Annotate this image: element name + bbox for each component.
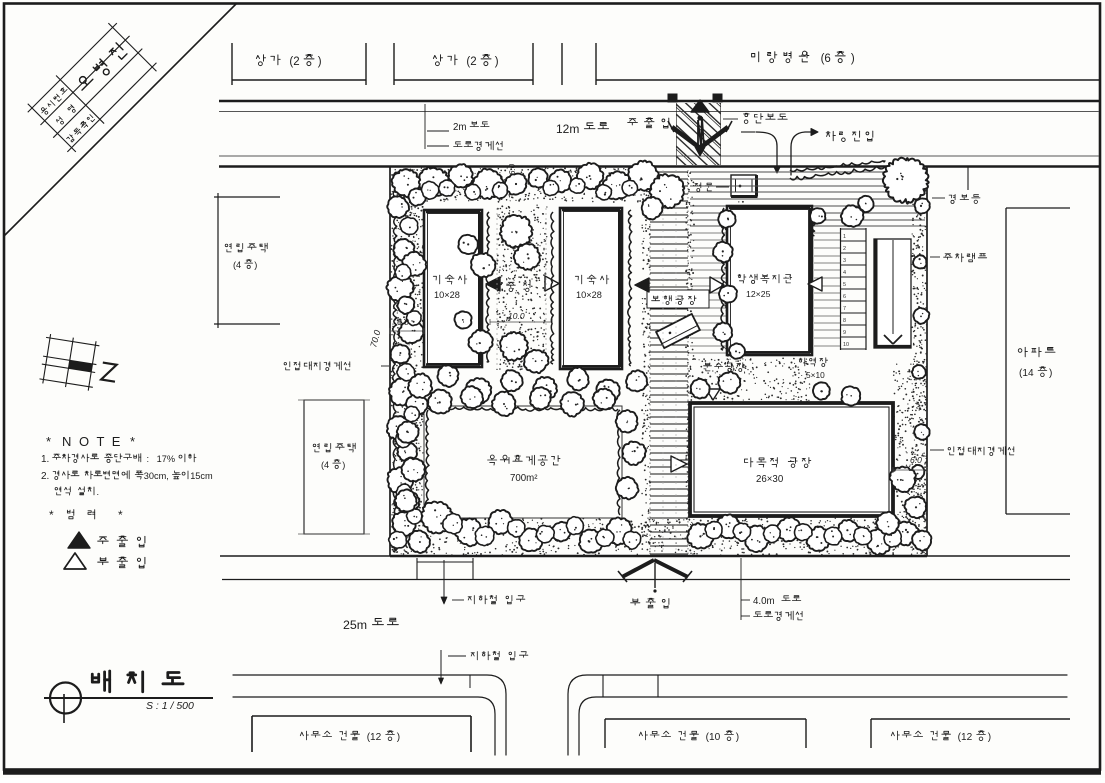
svg-text:9: 9 [843, 330, 846, 336]
svg-text:S : 1 / 500: S : 1 / 500 [146, 700, 194, 712]
svg-text:*: * [46, 434, 51, 449]
svg-text:10×28: 10×28 [576, 290, 602, 300]
svg-text:2: 2 [843, 246, 846, 252]
svg-text:5: 5 [843, 282, 846, 288]
svg-text:6: 6 [843, 294, 846, 300]
svg-text:10.0: 10.0 [508, 311, 525, 321]
svg-text:): ) [851, 53, 855, 65]
svg-text:): ) [342, 460, 345, 470]
svg-text:): ) [397, 732, 400, 743]
svg-text:(12: (12 [958, 732, 973, 743]
svg-text:(6: (6 [821, 53, 831, 65]
svg-text:15cm: 15cm [190, 471, 213, 481]
svg-text:(4: (4 [321, 460, 329, 470]
svg-text:26×30: 26×30 [756, 474, 784, 485]
svg-text:): ) [254, 260, 257, 270]
svg-text:*: * [118, 508, 123, 522]
svg-text::: : [147, 454, 150, 464]
svg-text:6.0: 6.0 [397, 317, 409, 327]
svg-text:(2: (2 [289, 56, 299, 68]
svg-text:*: * [130, 434, 135, 449]
svg-text:2m: 2m [453, 122, 466, 133]
svg-text:8: 8 [843, 318, 846, 324]
svg-text:*: * [49, 508, 54, 522]
svg-text:): ) [1049, 368, 1052, 379]
svg-text:10: 10 [843, 342, 849, 348]
svg-text:10×28: 10×28 [434, 290, 460, 300]
svg-text:(10: (10 [706, 732, 721, 743]
svg-text:): ) [988, 732, 991, 743]
svg-text:1: 1 [843, 234, 846, 240]
svg-text:2.: 2. [41, 471, 49, 482]
svg-text:.: . [97, 487, 100, 497]
svg-text:6.0: 6.0 [910, 455, 922, 465]
svg-text:(14: (14 [1019, 368, 1034, 379]
svg-text:5×10: 5×10 [806, 370, 825, 380]
svg-text:17%: 17% [157, 454, 175, 464]
svg-text:700m²: 700m² [510, 473, 538, 484]
svg-text:25m: 25m [343, 618, 367, 632]
svg-text:6.0: 6.0 [508, 163, 517, 175]
svg-text:1.: 1. [41, 454, 49, 465]
svg-text:12m: 12m [556, 122, 579, 136]
svg-text:4: 4 [843, 270, 846, 276]
svg-text:7: 7 [843, 306, 846, 312]
svg-text:(12: (12 [367, 732, 382, 743]
svg-text:): ) [318, 56, 322, 68]
svg-text:(4: (4 [233, 260, 241, 270]
svg-text:4.0m: 4.0m [753, 596, 775, 607]
svg-text:(2: (2 [466, 56, 476, 68]
svg-text:): ) [736, 732, 739, 743]
svg-text:): ) [495, 56, 499, 68]
svg-text:30cm,: 30cm, [144, 471, 169, 481]
svg-text:3: 3 [843, 258, 846, 264]
svg-text:12×25: 12×25 [746, 289, 771, 299]
svg-text:N O T E: N O T E [62, 434, 122, 449]
